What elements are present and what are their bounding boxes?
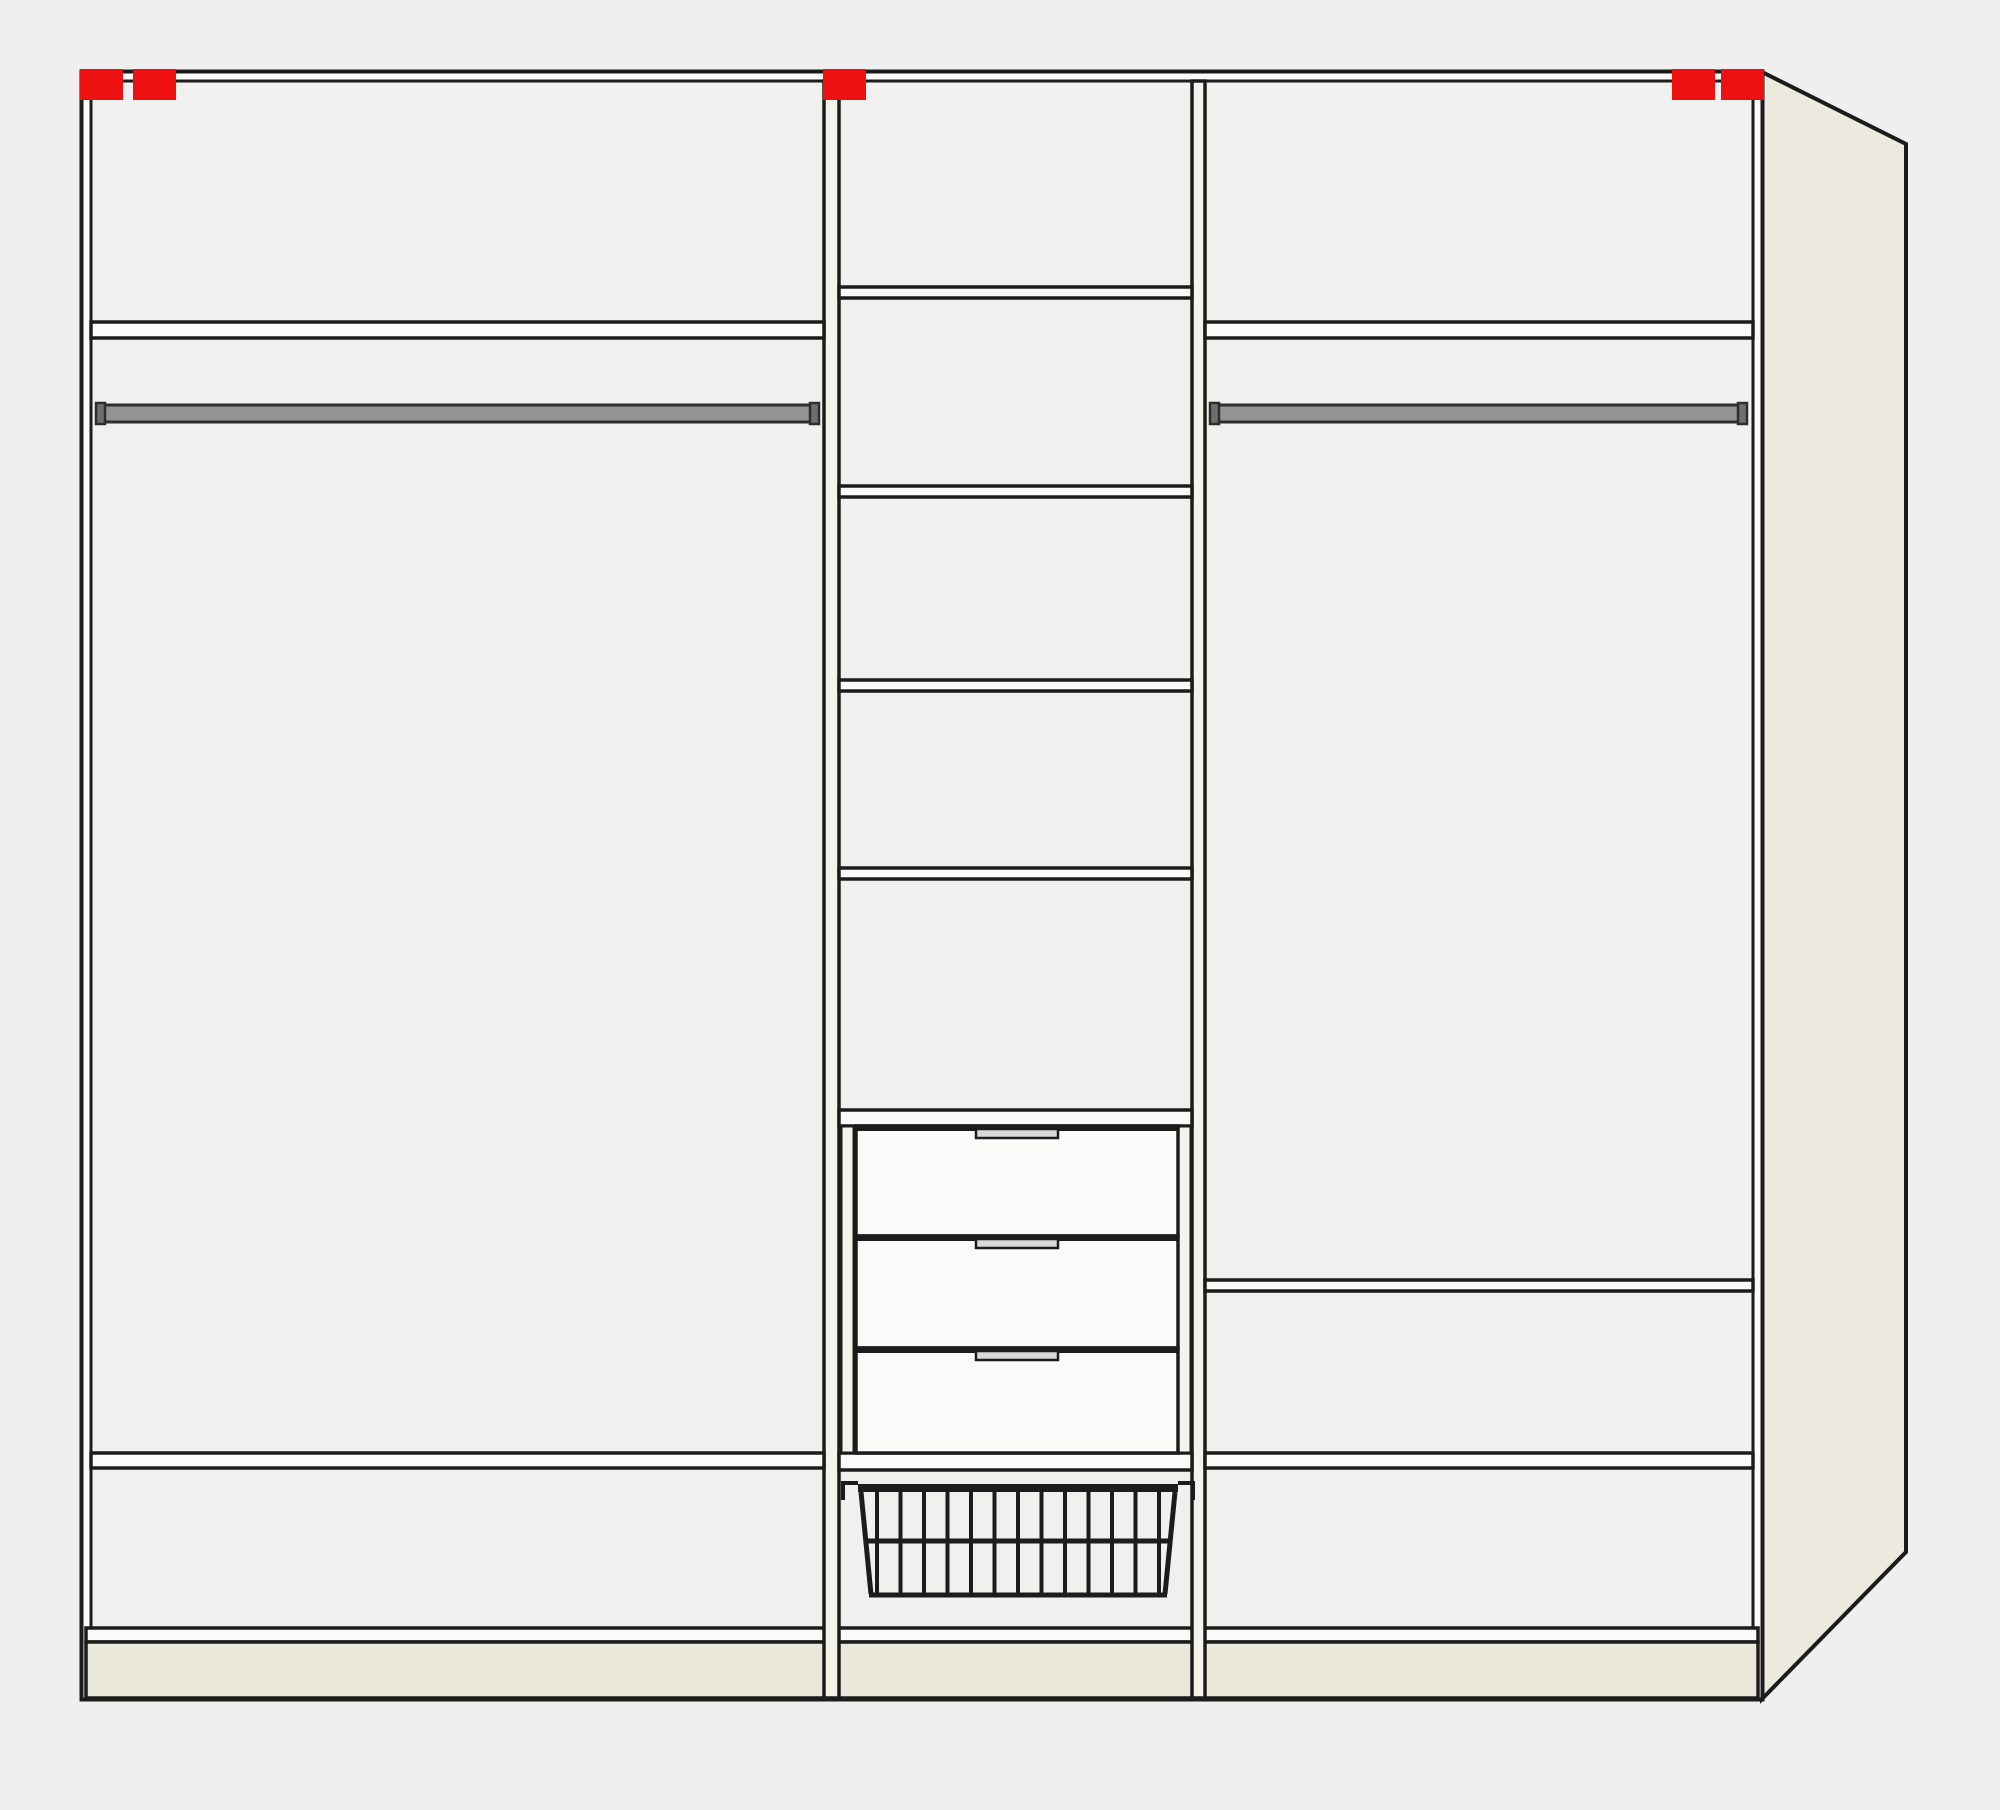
shelf[interactable] <box>91 1453 824 1468</box>
wardrobe-diagram <box>0 0 2000 1810</box>
clothes-rail[interactable] <box>1211 405 1746 422</box>
drawer-side-rail <box>841 1126 854 1453</box>
rail-end-cap <box>1210 403 1219 424</box>
rail-end-cap <box>1738 403 1747 424</box>
rail-end-cap <box>96 403 105 424</box>
shelf[interactable] <box>839 486 1192 497</box>
top-board <box>82 72 1762 81</box>
drawer-unit-bottom-board <box>839 1453 1192 1470</box>
mount-marker <box>1672 69 1715 100</box>
drawer-handle[interactable] <box>976 1129 1058 1138</box>
drawer[interactable] <box>856 1126 1178 1236</box>
plinth <box>86 1642 1758 1698</box>
drawer[interactable] <box>856 1236 1178 1348</box>
side-panel <box>1762 72 1906 1699</box>
drawer-side-rail <box>1178 1126 1191 1453</box>
clothes-rail[interactable] <box>97 405 818 422</box>
mount-marker <box>823 69 866 100</box>
mount-marker <box>133 69 176 100</box>
drawer-front[interactable] <box>856 1126 1178 1236</box>
partition-panel <box>1192 81 1205 1698</box>
shelf[interactable] <box>839 680 1192 691</box>
side-panel-face <box>1762 72 1906 1699</box>
drawer[interactable] <box>856 1348 1178 1453</box>
drawer-handle[interactable] <box>976 1239 1058 1248</box>
shelf[interactable] <box>1205 1453 1753 1468</box>
shelf[interactable] <box>1205 1280 1753 1291</box>
bottom-board <box>86 1628 1758 1642</box>
rail-end-cap <box>810 403 819 424</box>
drawer-unit-top-board <box>839 1110 1192 1126</box>
shelf[interactable] <box>839 287 1192 298</box>
mount-marker <box>80 69 123 100</box>
partition-panel <box>824 81 839 1698</box>
wardrobe-scene <box>0 0 2000 1810</box>
mount-marker <box>1721 69 1764 100</box>
plinth-base <box>86 1628 1758 1698</box>
shelf[interactable] <box>839 868 1192 879</box>
shelf[interactable] <box>91 322 824 338</box>
drawer-handle[interactable] <box>976 1351 1058 1360</box>
drawer-front[interactable] <box>856 1348 1178 1453</box>
drawer-front[interactable] <box>856 1236 1178 1348</box>
shelf[interactable] <box>1205 322 1753 338</box>
